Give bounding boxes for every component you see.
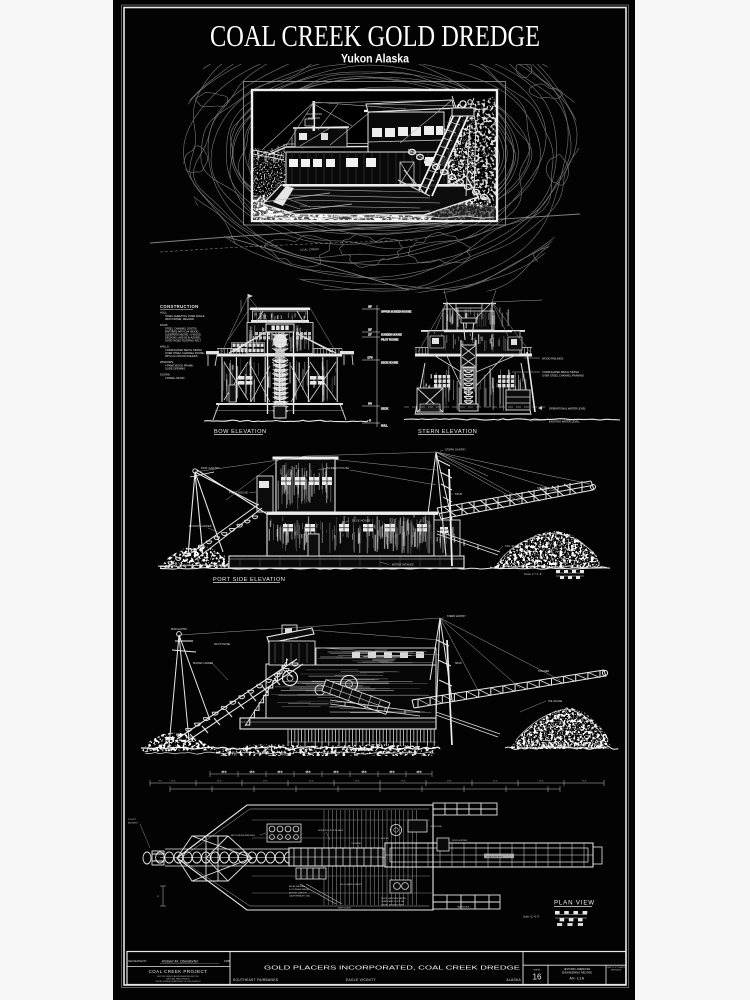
svg-text:4-CYLINDER DIESEL: 4-CYLINDER DIESEL (289, 889, 310, 891)
svg-text:DOORS:: DOORS: (160, 373, 171, 377)
svg-text:BOILER: BOILER (381, 838, 389, 840)
svg-text:12'-6: 12'-6 (334, 772, 340, 774)
svg-text:SOUTHEAST FAIRBANKS: SOUTHEAST FAIRBANKS (233, 978, 279, 982)
svg-text:SHEET 16 OF 23 SHEETS: SHEET 16 OF 23 SHEETS (607, 967, 625, 969)
svg-text:BUCKET LADDER: BUCKET LADDER (189, 525, 212, 528)
svg-text:TAIL SLUICE: TAIL SLUICE (457, 906, 470, 909)
svg-text:STERN GANTRY: STERN GANTRY (445, 449, 466, 452)
svg-text:STERN GANTRY: STERN GANTRY (447, 615, 466, 618)
svg-text:29': 29' (368, 328, 372, 332)
svg-text:Scale ³⁄₁₆"=1'-0": Scale ³⁄₁₆"=1'-0" (523, 916, 540, 919)
svg-text:HISTORIC AMERICAN ENGINEERING: HISTORIC AMERICAN ENGINEERING RECORD (157, 975, 200, 978)
svg-text:SPUD: SPUD (455, 493, 463, 496)
svg-text:Robert M. Oberdorfer: Robert M. Oberdorfer (162, 959, 199, 963)
svg-text:DIXON JACKSON WATER: DIXON JACKSON WATER (381, 897, 406, 900)
svg-text:PLAN VIEW: PLAN VIEW (554, 900, 595, 907)
svg-text:EXISTING WATER LEVEL: EXISTING WATER LEVEL (549, 420, 580, 424)
svg-text:SPUD HOPPER: SPUD HOPPER (452, 840, 468, 842)
svg-text:WITH 2x4 WOOD NAILERS.: WITH 2x4 WOOD NAILERS. (165, 354, 198, 358)
svg-text:PILOT HOUSE: PILOT HOUSE (214, 643, 230, 646)
svg-text:COAL CREEK GOLD DREDGE: COAL CREEK GOLD DREDGE (210, 18, 540, 53)
svg-text:Scale ¼"=1'-0": Scale ¼"=1'-0" (524, 573, 542, 576)
svg-text:DECK HOUSE: DECK HOUSE (381, 361, 398, 365)
svg-text:12'-6: 12'-6 (417, 772, 423, 774)
svg-text:ENGINEERING RECORD: ENGINEERING RECORD (562, 971, 592, 975)
svg-text:ALASKA: ALASKA (506, 978, 521, 982)
svg-text:4 PANEL WOOD: 4 PANEL WOOD (165, 376, 185, 380)
svg-text:NATIONAL PARK SERVICE: NATIONAL PARK SERVICE (166, 978, 190, 981)
svg-text:WALLS:: WALLS: (160, 345, 170, 349)
svg-text:CALIFORNIA (P# 503): CALIFORNIA (P# 503) (289, 895, 310, 898)
svg-text:OUTHOUSE: OUTHOUSE (430, 826, 442, 828)
svg-text:BELT-DRIVEN WINCHES: BELT-DRIVEN WINCHES (231, 835, 255, 837)
svg-text:STERN ELEVATION: STERN ELEVATION (418, 429, 477, 435)
svg-text:BUCKETS: BUCKETS (128, 822, 138, 824)
svg-text:DECK HOUSE: DECK HOUSE (352, 520, 371, 523)
svg-text:GOLD PLACERS INCORPORATED,: GOLD PLACERS INCORPORATED, COAL CREEK DR… (264, 966, 520, 972)
svg-text:TAIL SLUICE: TAIL SLUICE (548, 700, 562, 703)
svg-text:COAL CREEK PROJECT: COAL CREEK PROJECT (149, 969, 208, 974)
svg-text:PORT SIDE ELEVATION: PORT SIDE ELEVATION (213, 577, 286, 583)
svg-text:CONSTRUCTION: CONSTRUCTION (160, 304, 199, 309)
svg-text:UNITED STATES DEPARTMENT OF TH: UNITED STATES DEPARTMENT OF THE INTERIOR (156, 980, 202, 983)
svg-text:SHEET: SHEET (533, 970, 541, 972)
svg-text:WINDOWS:: WINDOWS: (160, 360, 174, 364)
svg-text:DELINEATED BY:: DELINEATED BY: (128, 960, 148, 963)
svg-text:WOOD RAILINGS: WOOD RAILINGS (542, 357, 563, 361)
svg-text:12'-6: 12'-6 (222, 772, 228, 774)
svg-text:UPPER SCREEN HOUSE: UPPER SCREEN HOUSE (381, 310, 412, 314)
svg-text:BOW GANTRY: BOW GANTRY (171, 628, 188, 631)
svg-text:PILOT HOUSE: PILOT HOUSE (381, 338, 399, 342)
svg-text:STACKER BELT: STACKER BELT (487, 855, 504, 858)
svg-text:SCREEN HOUSE: SCREEN HOUSE (381, 333, 402, 337)
svg-text:12'-6: 12'-6 (362, 772, 368, 774)
svg-text:HULL:: HULL: (160, 311, 168, 315)
svg-text:12'-6: 12'-6 (250, 772, 256, 774)
svg-text:PUMPS AND 15 H.P. GE: PUMPS AND 15 H.P. GE (381, 900, 405, 903)
svg-text:GATE FACED ROOFING FELT: GATE FACED ROOFING FELT (165, 339, 201, 343)
svg-text:HULL: HULL (381, 424, 388, 428)
svg-text:12'-6: 12'-6 (390, 772, 396, 774)
svg-text:17'6: 17'6 (367, 356, 373, 360)
svg-text:WATER INTAKES: WATER INTAKES (392, 564, 414, 567)
svg-text:AK-11A: AK-11A (569, 976, 584, 980)
svg-text:TROMMEL: TROMMEL (351, 843, 362, 845)
svg-text:OPERATIONAL WATER LEVEL: OPERATIONAL WATER LEVEL (549, 407, 586, 411)
svg-text:HISTORIC AMERICAN: HISTORIC AMERICAN (564, 967, 591, 971)
svg-text:OVER STEEL CHANNEL FRAMING: OVER STEEL CHANNEL FRAMING (542, 373, 584, 377)
svg-text:38': 38' (368, 305, 372, 309)
svg-text:Yukon Alaska: Yukon Alaska (341, 52, 409, 66)
svg-text:LONGITUDINAL SECTION: LONGITUDINAL SECTION (519, 742, 605, 748)
svg-text:12'-6: 12'-6 (278, 772, 284, 774)
svg-text:DECK: DECK (381, 407, 388, 411)
svg-text:16: 16 (533, 973, 542, 982)
svg-text:DIESEL ENGINE DRIVE: DIESEL ENGINE DRIVE (381, 904, 404, 906)
svg-text:SLIDE OPENING: SLIDE OPENING (165, 367, 185, 371)
svg-text:BOW ELEVATION: BOW ELEVATION (214, 429, 267, 435)
svg-text:CORRUGATED METAL SIDING: CORRUGATED METAL SIDING (542, 370, 579, 374)
svg-text:EAGLE VICINITY: EAGLE VICINITY (346, 978, 377, 982)
svg-text:IRON FRAME, WELDED.: IRON FRAME, WELDED. (165, 317, 195, 321)
svg-text:DRIVE PULLEYS W/ JACK: DRIVE PULLEYS W/ JACK (318, 829, 344, 832)
svg-text:9 CU FT: 9 CU FT (128, 819, 137, 821)
svg-text:27': 27' (368, 333, 372, 337)
svg-text:SIDE SLUICE: SIDE SLUICE (338, 908, 352, 910)
svg-text:SPUD: SPUD (455, 662, 462, 665)
svg-text:GOLD-SAVING TABLES: GOLD-SAVING TABLES (340, 883, 362, 886)
svg-text:9'0: 9'0 (368, 402, 372, 406)
svg-text:BUCKET LADDER: BUCKET LADDER (193, 662, 213, 665)
svg-text:12'-6: 12'-6 (306, 772, 312, 774)
svg-text:ROOF:: ROOF: (160, 323, 168, 327)
svg-text:SCREEN HOUSE: SCREEN HOUSE (327, 467, 350, 470)
